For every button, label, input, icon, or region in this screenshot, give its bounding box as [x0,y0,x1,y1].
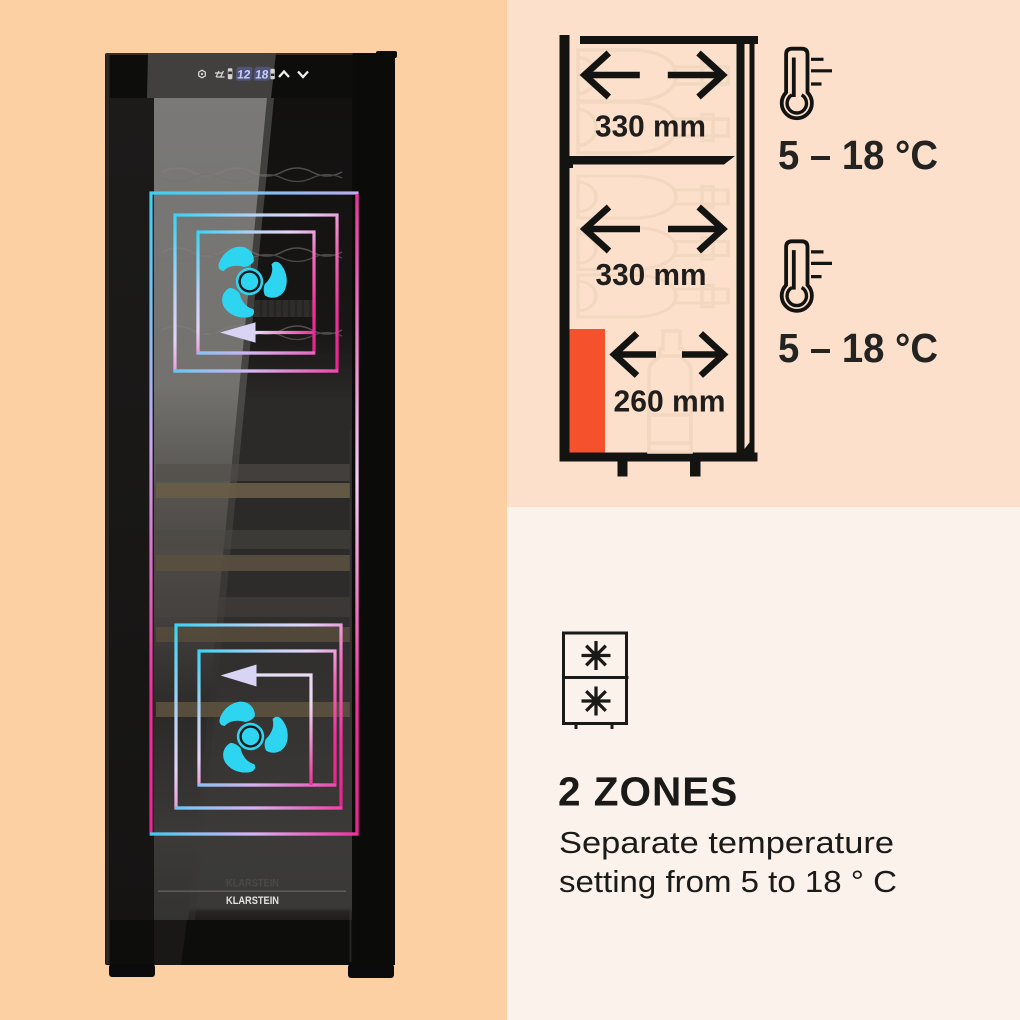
svg-text:setting from 5 to 18 ° C: setting from 5 to 18 ° C [559,865,897,899]
svg-text:KLARSTEIN: KLARSTEIN [226,895,279,907]
svg-text:330 mm: 330 mm [596,258,707,292]
svg-text:KLARSTEIN: KLARSTEIN [226,878,279,890]
svg-text:260 mm: 260 mm [614,385,726,419]
svg-text:Separate temperature: Separate temperature [559,826,894,860]
svg-text:12: 12 [236,68,251,82]
svg-text:5 – 18 °C: 5 – 18 °C [778,132,938,178]
svg-text:18: 18 [254,68,269,82]
svg-text:330 mm: 330 mm [595,110,706,144]
svg-text:5 – 18 °C: 5 – 18 °C [778,325,938,371]
svg-text:2 ZONES: 2 ZONES [558,769,738,815]
